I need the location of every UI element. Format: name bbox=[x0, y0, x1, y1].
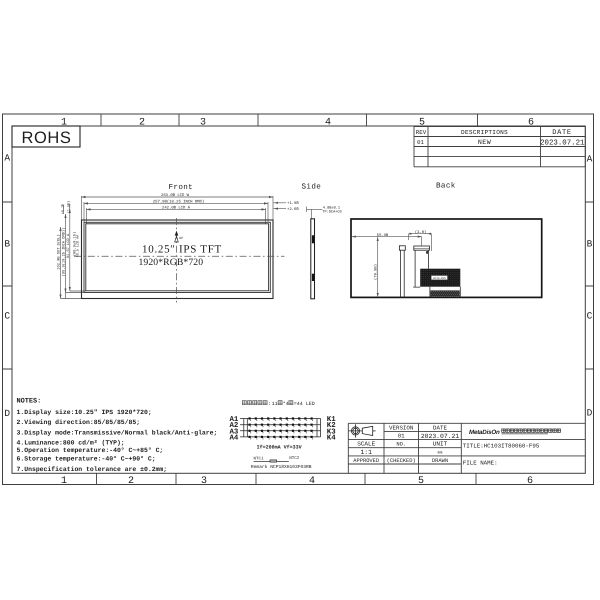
svg-text:DATE: DATE bbox=[552, 129, 572, 137]
svg-text:242.0B LCD A: 242.0B LCD A bbox=[162, 205, 191, 210]
svg-text:2023.07.21: 2023.07.21 bbox=[540, 140, 585, 148]
svg-text:4: 4 bbox=[325, 118, 331, 129]
svg-text:+1.9B: +1.9B bbox=[287, 201, 299, 206]
svg-text:REV: REV bbox=[416, 129, 427, 136]
svg-text:1.Display size:10.25″ IPS 1920: 1.Display size:10.25″ IPS 1920*720; bbox=[17, 409, 152, 416]
svg-text:2: 2 bbox=[128, 476, 134, 487]
svg-text:Remark NCP18XH103F03RB: Remark NCP18XH103F03RB bbox=[251, 464, 312, 470]
svg-text:UNIT: UNIT bbox=[433, 441, 448, 448]
svg-text:K4: K4 bbox=[327, 434, 336, 442]
svg-text:C: C bbox=[587, 311, 593, 322]
svg-text:DATE: DATE bbox=[433, 425, 447, 432]
svg-text:Front: Front bbox=[169, 183, 194, 192]
svg-text:01: 01 bbox=[417, 139, 424, 146]
svg-text:TP:OCA+CG: TP:OCA+CG bbox=[322, 209, 341, 214]
svg-text:(3.0): (3.0) bbox=[415, 230, 426, 235]
svg-text:DESCRIPTIONS: DESCRIPTIONS bbox=[461, 129, 508, 136]
svg-text:5: 5 bbox=[418, 476, 424, 487]
svg-text:FILE NAME:: FILE NAME: bbox=[463, 459, 498, 466]
svg-text:(78.5B): (78.5B) bbox=[374, 264, 379, 280]
svg-text:Side: Side bbox=[302, 183, 322, 192]
svg-text:ROHS: ROHS bbox=[21, 129, 71, 147]
svg-text:+2.6B: +2.6B bbox=[287, 207, 299, 212]
svg-text::: : bbox=[268, 401, 271, 407]
svg-text:DRAWN: DRAWN bbox=[432, 458, 448, 464]
svg-text:+5.1B: +5.1B bbox=[61, 204, 66, 214]
svg-text:11: 11 bbox=[272, 401, 278, 407]
svg-text:91.57 LCD A: 91.57 LCD A bbox=[66, 233, 71, 258]
svg-text:(1.9B): (1.9B) bbox=[67, 201, 72, 213]
svg-text:NEW: NEW bbox=[478, 139, 491, 146]
svg-text:2: 2 bbox=[139, 118, 145, 129]
svg-text:TITLE:HC103IT80060-F95: TITLE:HC103IT80060-F95 bbox=[463, 443, 540, 450]
svg-text:88.9 LCD AA: 88.9 LCD AA bbox=[75, 234, 80, 257]
svg-text:3.Display mode:Transmissive/No: 3.Display mode:Transmissive/Normal black… bbox=[17, 430, 218, 437]
svg-text:VERSION: VERSION bbox=[389, 425, 414, 432]
svg-text:NO.: NO. bbox=[396, 441, 406, 447]
svg-text:(CHECKED): (CHECKED) bbox=[387, 458, 416, 464]
svg-text:mm: mm bbox=[438, 450, 443, 455]
svg-text:D: D bbox=[4, 408, 10, 419]
svg-text:A: A bbox=[4, 153, 10, 164]
svg-text:2.Viewing direction:85/85/85/8: 2.Viewing direction:85/85/85/85; bbox=[17, 419, 141, 426]
svg-text:B: B bbox=[587, 239, 593, 250]
svg-text:1920*RGB*720: 1920*RGB*720 bbox=[138, 257, 203, 268]
svg-text:=44 LED: =44 LED bbox=[294, 401, 315, 407]
svg-text:*4: *4 bbox=[283, 401, 289, 407]
svg-text:B: B bbox=[4, 239, 10, 250]
svg-text:C: C bbox=[4, 311, 10, 322]
svg-text:01: 01 bbox=[398, 433, 405, 440]
svg-text:A4: A4 bbox=[230, 434, 239, 442]
svg-text:1:1: 1:1 bbox=[360, 449, 372, 456]
svg-text:6.Storage temperature:-40° C~+: 6.Storage temperature:-40° C~+90° C; bbox=[17, 456, 156, 463]
svg-text:10.25″ IPS TFT: 10.25″ IPS TFT bbox=[142, 244, 222, 256]
svg-text:6: 6 bbox=[527, 476, 533, 487]
svg-text:HC10-F95: HC10-F95 bbox=[433, 277, 446, 280]
svg-text:5.Operation temperature:-40° C: 5.Operation temperature:-40° C~+85° C; bbox=[17, 447, 164, 454]
svg-text:APPROVED: APPROVED bbox=[353, 458, 379, 464]
svg-text:102.0B OUT D(EL): 102.0B OUT D(EL) bbox=[56, 234, 61, 269]
svg-text:263.0B LCD W: 263.0B LCD W bbox=[161, 193, 190, 198]
svg-text:UP: UP bbox=[179, 236, 183, 240]
svg-text:Back: Back bbox=[436, 181, 456, 190]
svg-text:If=200mA Vf=33V: If=200mA Vf=33V bbox=[257, 444, 302, 450]
svg-text:D: D bbox=[587, 408, 593, 419]
svg-text:4.Luminance:800 cd/m² (TYP);: 4.Luminance:800 cd/m² (TYP); bbox=[17, 439, 125, 446]
svg-text:(95.9(10.25 INCH OMD)): (95.9(10.25 INCH OMD)) bbox=[61, 228, 66, 277]
svg-text:3: 3 bbox=[200, 118, 206, 129]
svg-text:3: 3 bbox=[201, 476, 207, 487]
svg-text:2023.07.21: 2023.07.21 bbox=[421, 433, 460, 440]
svg-text:A: A bbox=[587, 154, 593, 165]
svg-text:65.9B: 65.9B bbox=[377, 233, 389, 238]
svg-text:NOTES:: NOTES: bbox=[17, 398, 42, 406]
svg-text:NTC2: NTC2 bbox=[289, 456, 300, 461]
svg-text:7.Unspecification tolerance ar: 7.Unspecification tolerance are ±0.2mm; bbox=[17, 466, 168, 473]
svg-text:SCALE: SCALE bbox=[357, 441, 375, 448]
svg-text:NTC1: NTC1 bbox=[254, 456, 265, 461]
svg-text:1: 1 bbox=[61, 476, 67, 487]
svg-text:257.9B(10.25 INCH OMD): 257.9B(10.25 INCH OMD) bbox=[153, 199, 204, 204]
svg-text:MetaDisOn: MetaDisOn bbox=[469, 429, 500, 436]
svg-text:4: 4 bbox=[309, 476, 315, 487]
